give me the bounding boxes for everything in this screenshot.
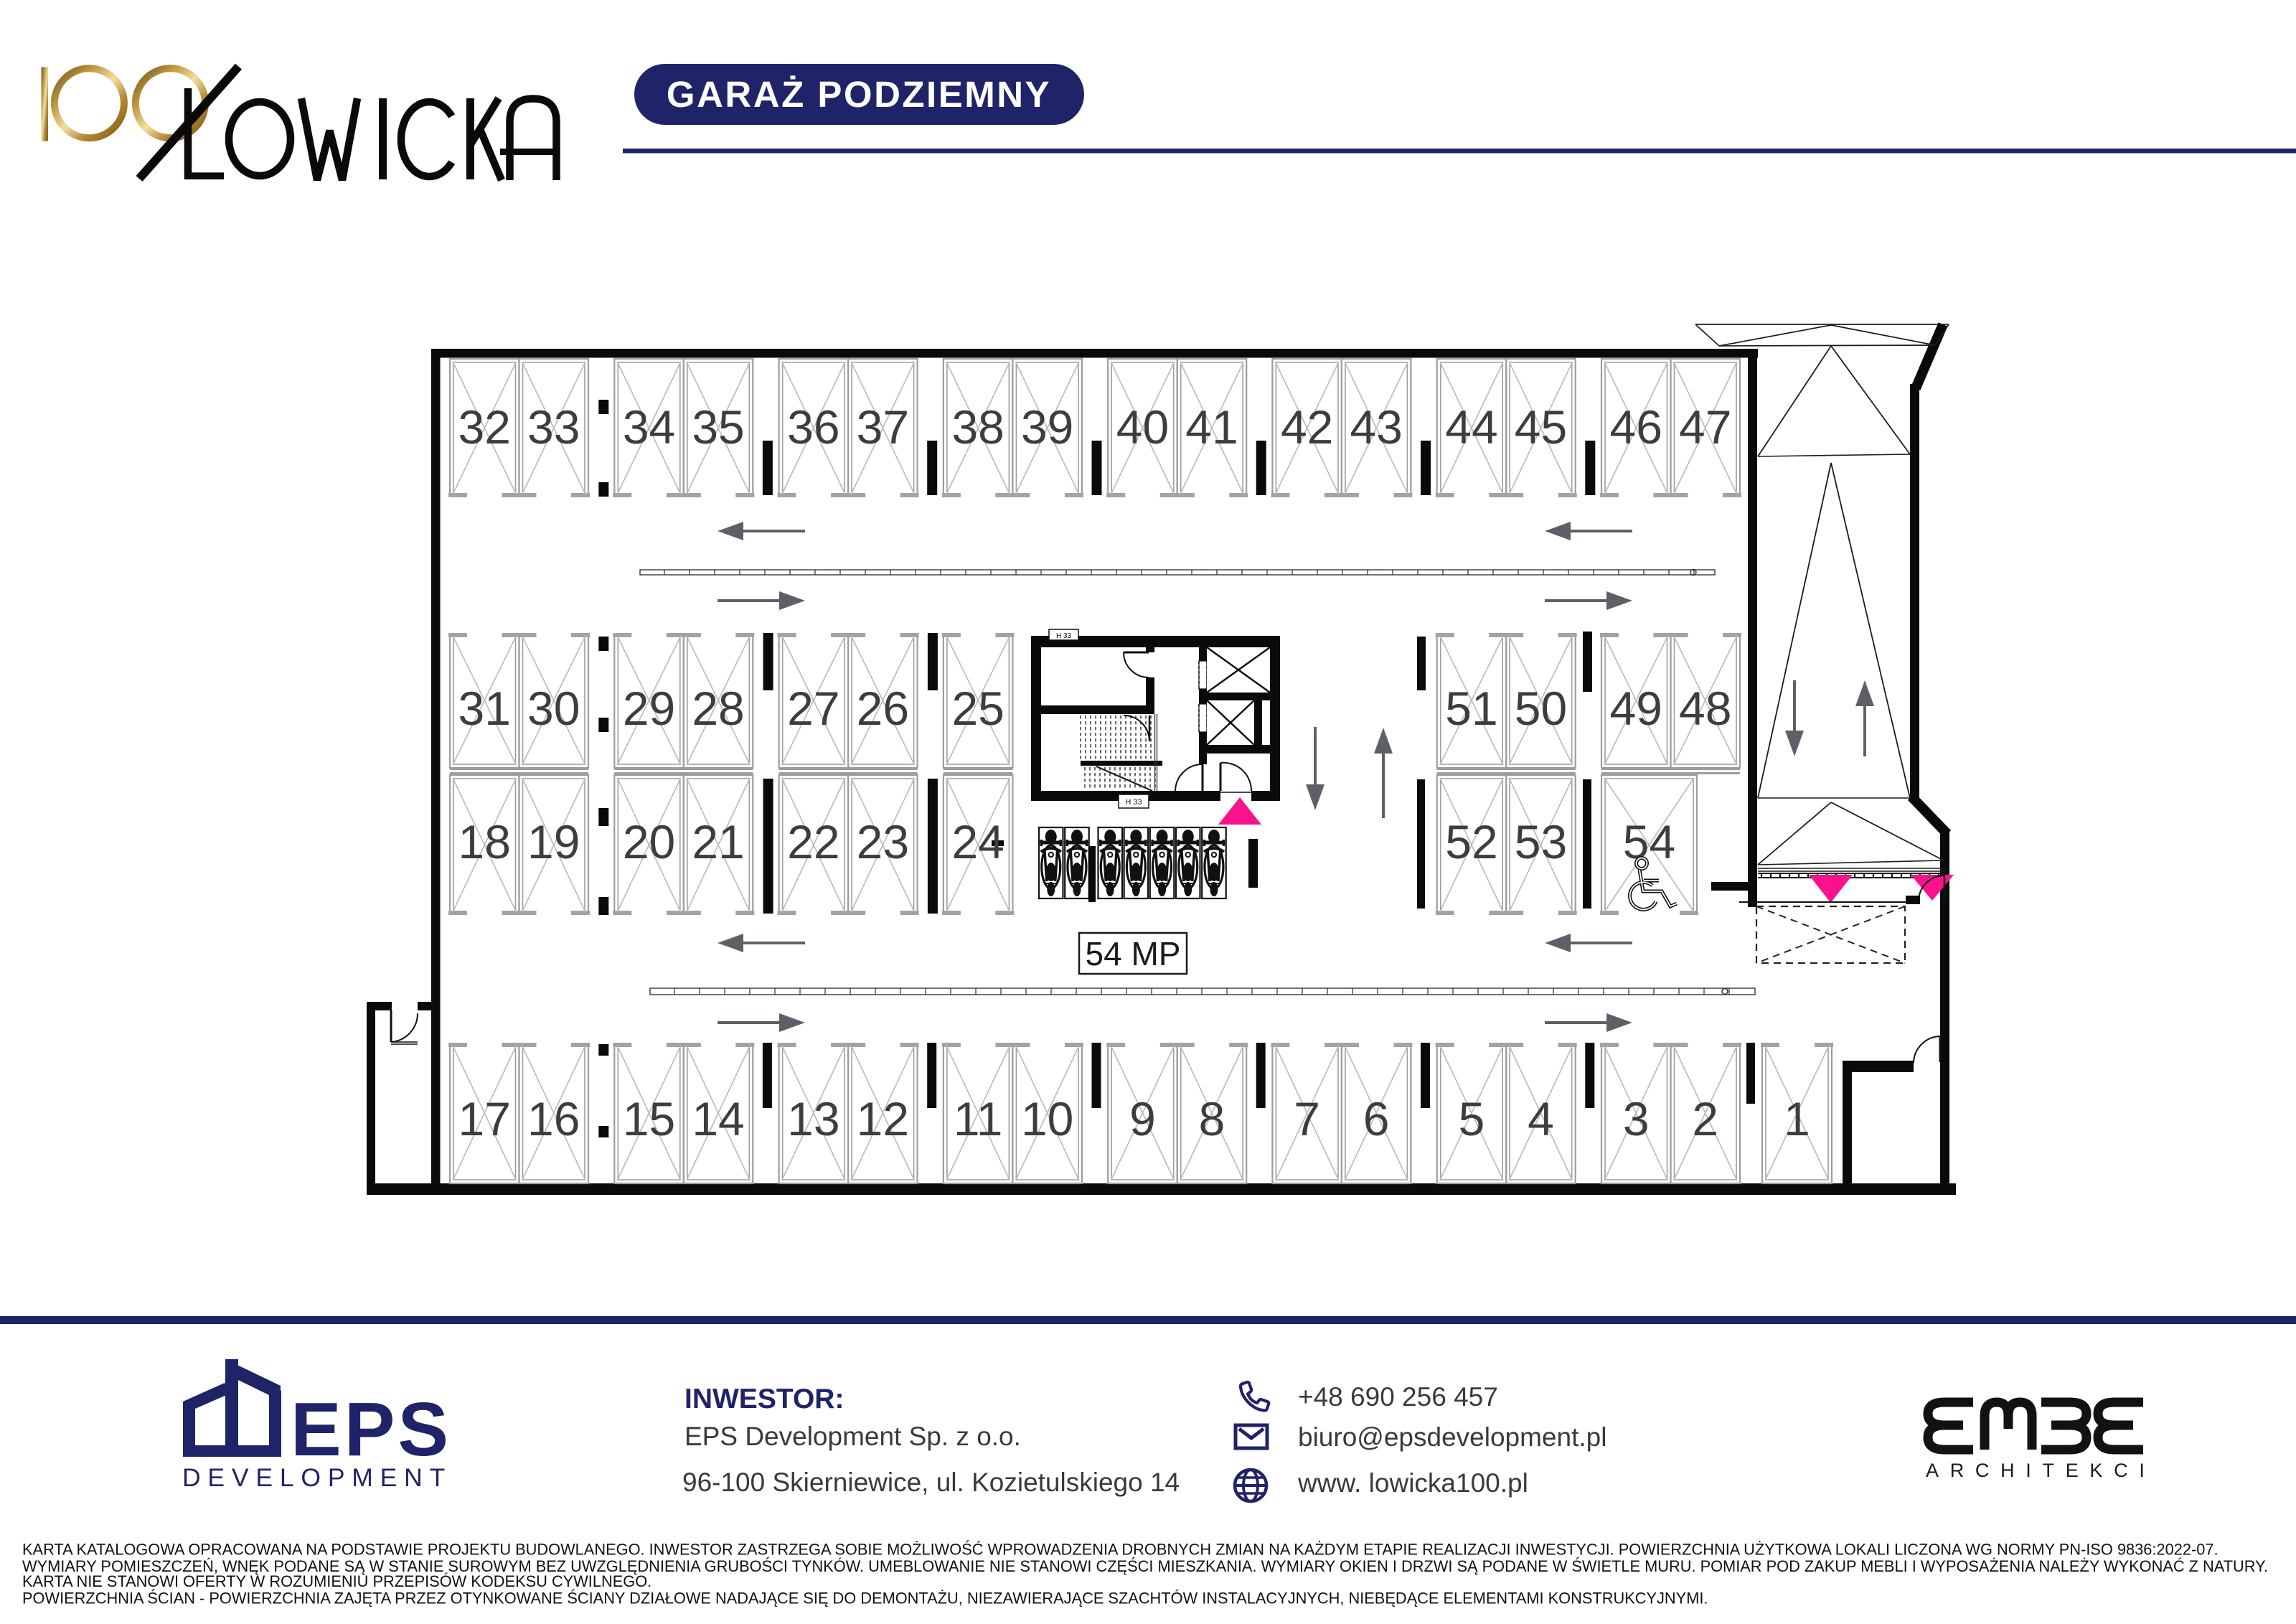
svg-text:+48 690 256 457: +48 690 256 457	[1298, 1382, 1498, 1412]
svg-text:H 33: H 33	[1125, 798, 1142, 807]
svg-text:9: 9	[1129, 1092, 1156, 1145]
svg-text:19: 19	[527, 815, 580, 868]
svg-text:42: 42	[1281, 400, 1333, 454]
svg-text:20: 20	[623, 815, 675, 868]
svg-text:biuro@epsdevelopment.pl: biuro@epsdevelopment.pl	[1298, 1422, 1606, 1452]
svg-text:26: 26	[857, 682, 909, 735]
svg-text:54 MP: 54 MP	[1086, 935, 1181, 972]
svg-text:32: 32	[458, 400, 511, 454]
svg-text:12: 12	[857, 1092, 909, 1145]
svg-text:14: 14	[692, 1092, 744, 1145]
svg-text:EPS Development Sp. z o.o.: EPS Development Sp. z o.o.	[684, 1422, 1021, 1451]
svg-text:17: 17	[458, 1092, 511, 1145]
svg-text:5: 5	[1459, 1092, 1485, 1145]
svg-text:7: 7	[1294, 1092, 1320, 1145]
svg-text:31: 31	[458, 682, 511, 735]
svg-text:23: 23	[857, 815, 909, 868]
svg-text:47: 47	[1679, 400, 1731, 454]
svg-text:35: 35	[692, 400, 744, 454]
svg-text:3: 3	[1623, 1092, 1650, 1145]
svg-text:DEVELOPMENT: DEVELOPMENT	[182, 1463, 452, 1492]
svg-text:25: 25	[951, 682, 1004, 735]
svg-text:52: 52	[1445, 815, 1497, 868]
svg-text:24: 24	[951, 815, 1004, 868]
svg-text:KARTA KATALOGOWA OPRACOWANA NA: KARTA KATALOGOWA OPRACOWANA NA PODSTAWIE…	[22, 1541, 2219, 1559]
svg-text:45: 45	[1515, 400, 1567, 454]
svg-text:46: 46	[1610, 400, 1662, 454]
svg-text:33: 33	[527, 400, 580, 454]
svg-text:H 33: H 33	[1056, 632, 1072, 640]
svg-text:2: 2	[1692, 1092, 1718, 1145]
svg-text:15: 15	[623, 1092, 675, 1145]
svg-text:37: 37	[857, 400, 909, 454]
svg-text:GARAŻ PODZIEMNY: GARAŻ PODZIEMNY	[667, 74, 1051, 115]
svg-text:11: 11	[954, 1092, 1003, 1145]
svg-text:54: 54	[1623, 815, 1675, 868]
svg-text:48: 48	[1679, 682, 1731, 735]
svg-text:36: 36	[787, 400, 839, 454]
svg-text:30: 30	[527, 682, 580, 735]
svg-text:27: 27	[787, 682, 839, 735]
svg-text:8: 8	[1199, 1092, 1225, 1145]
svg-text:53: 53	[1515, 815, 1567, 868]
svg-text:4: 4	[1528, 1092, 1554, 1145]
svg-text:21: 21	[692, 815, 744, 868]
svg-text:6: 6	[1363, 1092, 1390, 1145]
svg-text:13: 13	[787, 1092, 839, 1145]
svg-text:38: 38	[951, 400, 1004, 454]
svg-text:49: 49	[1610, 682, 1662, 735]
svg-text:96-100 Skierniewice, ul. Kozie: 96-100 Skierniewice, ul. Kozietulskiego …	[682, 1468, 1180, 1497]
svg-text:44: 44	[1445, 400, 1497, 454]
svg-text:10: 10	[1021, 1092, 1073, 1145]
svg-text:50: 50	[1515, 682, 1567, 735]
svg-text:51: 51	[1445, 682, 1497, 735]
svg-text:www. lowicka100.pl: www. lowicka100.pl	[1297, 1468, 1528, 1498]
svg-text:40: 40	[1116, 400, 1169, 454]
svg-text:22: 22	[787, 815, 839, 868]
svg-text:41: 41	[1185, 400, 1238, 454]
svg-text:ARCHITEKCI: ARCHITEKCI	[1926, 1460, 2156, 1481]
svg-text:43: 43	[1350, 400, 1402, 454]
svg-text:1: 1	[1784, 1092, 1810, 1145]
svg-text:28: 28	[692, 682, 744, 735]
svg-text:KARTA NIE STANOWI OFERTY W ROZ: KARTA NIE STANOWI OFERTY W ROZUMIENIU PR…	[22, 1572, 651, 1590]
svg-text:18: 18	[458, 815, 511, 868]
svg-text:39: 39	[1021, 400, 1073, 454]
svg-text:POWIERZCHNIA ŚCIAN - POWIERZCH: POWIERZCHNIA ŚCIAN - POWIERZCHNIA ZAJĘTA…	[22, 1590, 1708, 1607]
svg-text:29: 29	[623, 682, 675, 735]
svg-text:34: 34	[623, 400, 675, 454]
svg-text:INWESTOR:: INWESTOR:	[684, 1384, 844, 1414]
svg-text:16: 16	[527, 1092, 580, 1145]
svg-text:EPS: EPS	[291, 1387, 451, 1472]
